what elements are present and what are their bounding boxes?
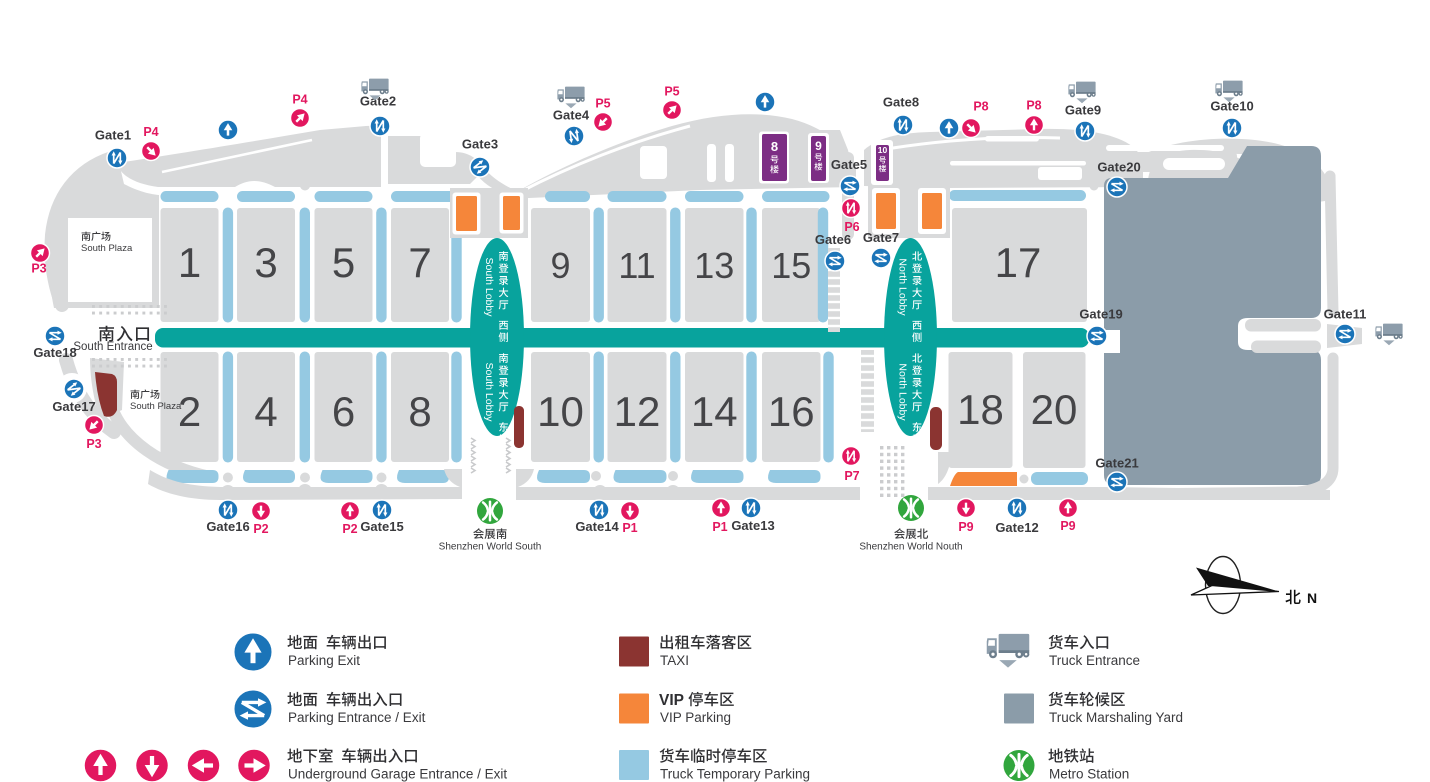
svg-text:13: 13 (694, 245, 734, 286)
svg-text:P4: P4 (143, 125, 158, 139)
svg-text:Gate1: Gate1 (95, 128, 131, 143)
svg-text:Shenzhen World South: Shenzhen World South (439, 542, 542, 553)
svg-text:P3: P3 (31, 262, 46, 276)
svg-text:P4: P4 (292, 93, 307, 107)
svg-text:P7: P7 (844, 469, 859, 483)
svg-text:Gate10: Gate10 (1210, 99, 1253, 114)
svg-text:11: 11 (618, 245, 655, 286)
svg-text:Gate20: Gate20 (1097, 160, 1140, 175)
svg-text:Gate16: Gate16 (206, 519, 249, 534)
svg-text:10: 10 (878, 145, 888, 155)
svg-text:TAXI: TAXI (660, 653, 689, 668)
svg-text:North Lobby: North Lobby (897, 363, 909, 421)
svg-text:Parking Exit: Parking Exit (288, 653, 360, 668)
svg-text:P5: P5 (595, 97, 610, 111)
svg-text:VIP: VIP (659, 692, 684, 709)
svg-text:20: 20 (1031, 386, 1078, 433)
svg-text:Truck Marshaling Yard: Truck Marshaling Yard (1049, 710, 1183, 725)
svg-text:Gate5: Gate5 (831, 157, 867, 172)
svg-text:Gate3: Gate3 (462, 137, 498, 152)
svg-text:P9: P9 (958, 520, 973, 534)
svg-text:Truck Temporary Parking: Truck Temporary Parking (660, 767, 810, 782)
svg-text:South Plaza: South Plaza (130, 401, 182, 412)
svg-text:5: 5 (332, 239, 355, 286)
svg-text:18: 18 (957, 386, 1004, 433)
svg-text:P2: P2 (342, 522, 357, 536)
svg-text:P8: P8 (1026, 99, 1041, 113)
svg-text:Gate17: Gate17 (52, 399, 95, 414)
svg-text:P5: P5 (664, 85, 679, 99)
svg-text:Gate19: Gate19 (1079, 307, 1122, 322)
svg-text:10: 10 (537, 388, 584, 435)
svg-text:4: 4 (254, 388, 277, 435)
svg-text:Gate7: Gate7 (863, 230, 899, 245)
svg-text:Shenzhen World Nouth: Shenzhen World Nouth (859, 542, 962, 553)
svg-text:Gate6: Gate6 (815, 232, 851, 247)
svg-text:South Lobby: South Lobby (483, 258, 495, 318)
svg-text:Gate21: Gate21 (1095, 456, 1138, 471)
svg-text:9: 9 (815, 139, 822, 153)
svg-text:Gate13: Gate13 (731, 518, 774, 533)
svg-text:Parking Entrance / Exit: Parking Entrance / Exit (288, 710, 426, 725)
svg-text:Gate15: Gate15 (360, 519, 403, 534)
svg-text:Gate14: Gate14 (575, 519, 619, 534)
svg-text:8: 8 (408, 388, 431, 435)
svg-text:Gate8: Gate8 (883, 95, 919, 110)
svg-text:16: 16 (768, 388, 815, 435)
svg-text:1: 1 (178, 239, 201, 286)
svg-text:8: 8 (771, 139, 778, 154)
svg-text:P3: P3 (86, 437, 101, 451)
svg-text:17: 17 (995, 239, 1042, 286)
svg-text:Gate18: Gate18 (33, 345, 76, 360)
svg-text:12: 12 (614, 388, 661, 435)
svg-text:Gate4: Gate4 (553, 108, 590, 123)
svg-text:P2: P2 (253, 522, 268, 536)
svg-text:6: 6 (332, 388, 355, 435)
svg-text:P8: P8 (973, 100, 988, 114)
svg-text:Metro Station: Metro Station (1049, 767, 1129, 782)
svg-text:South Entrance: South Entrance (73, 341, 152, 353)
svg-text:14: 14 (691, 388, 738, 435)
svg-text:2: 2 (178, 388, 201, 435)
svg-text:7: 7 (408, 239, 431, 286)
svg-text:South Lobby: South Lobby (483, 363, 495, 423)
svg-text:Truck Entrance: Truck Entrance (1049, 653, 1140, 668)
svg-text:Underground Garage Entrance /: Underground Garage Entrance / Exit (288, 767, 507, 782)
svg-text:9: 9 (550, 245, 570, 286)
svg-text:N: N (1307, 590, 1317, 606)
svg-text:P1: P1 (712, 520, 727, 534)
svg-text:South Plaza: South Plaza (81, 243, 133, 254)
svg-text:Gate12: Gate12 (995, 520, 1038, 535)
svg-text:Gate11: Gate11 (1324, 307, 1367, 322)
svg-text:P1: P1 (622, 521, 637, 535)
svg-text:North Lobby: North Lobby (897, 258, 909, 316)
svg-text:P9: P9 (1060, 519, 1075, 533)
svg-text:Gate9: Gate9 (1065, 103, 1101, 118)
svg-text:3: 3 (254, 239, 277, 286)
svg-text:VIP Parking: VIP Parking (660, 710, 731, 725)
svg-text:P6: P6 (844, 220, 859, 234)
svg-text:15: 15 (771, 245, 811, 286)
